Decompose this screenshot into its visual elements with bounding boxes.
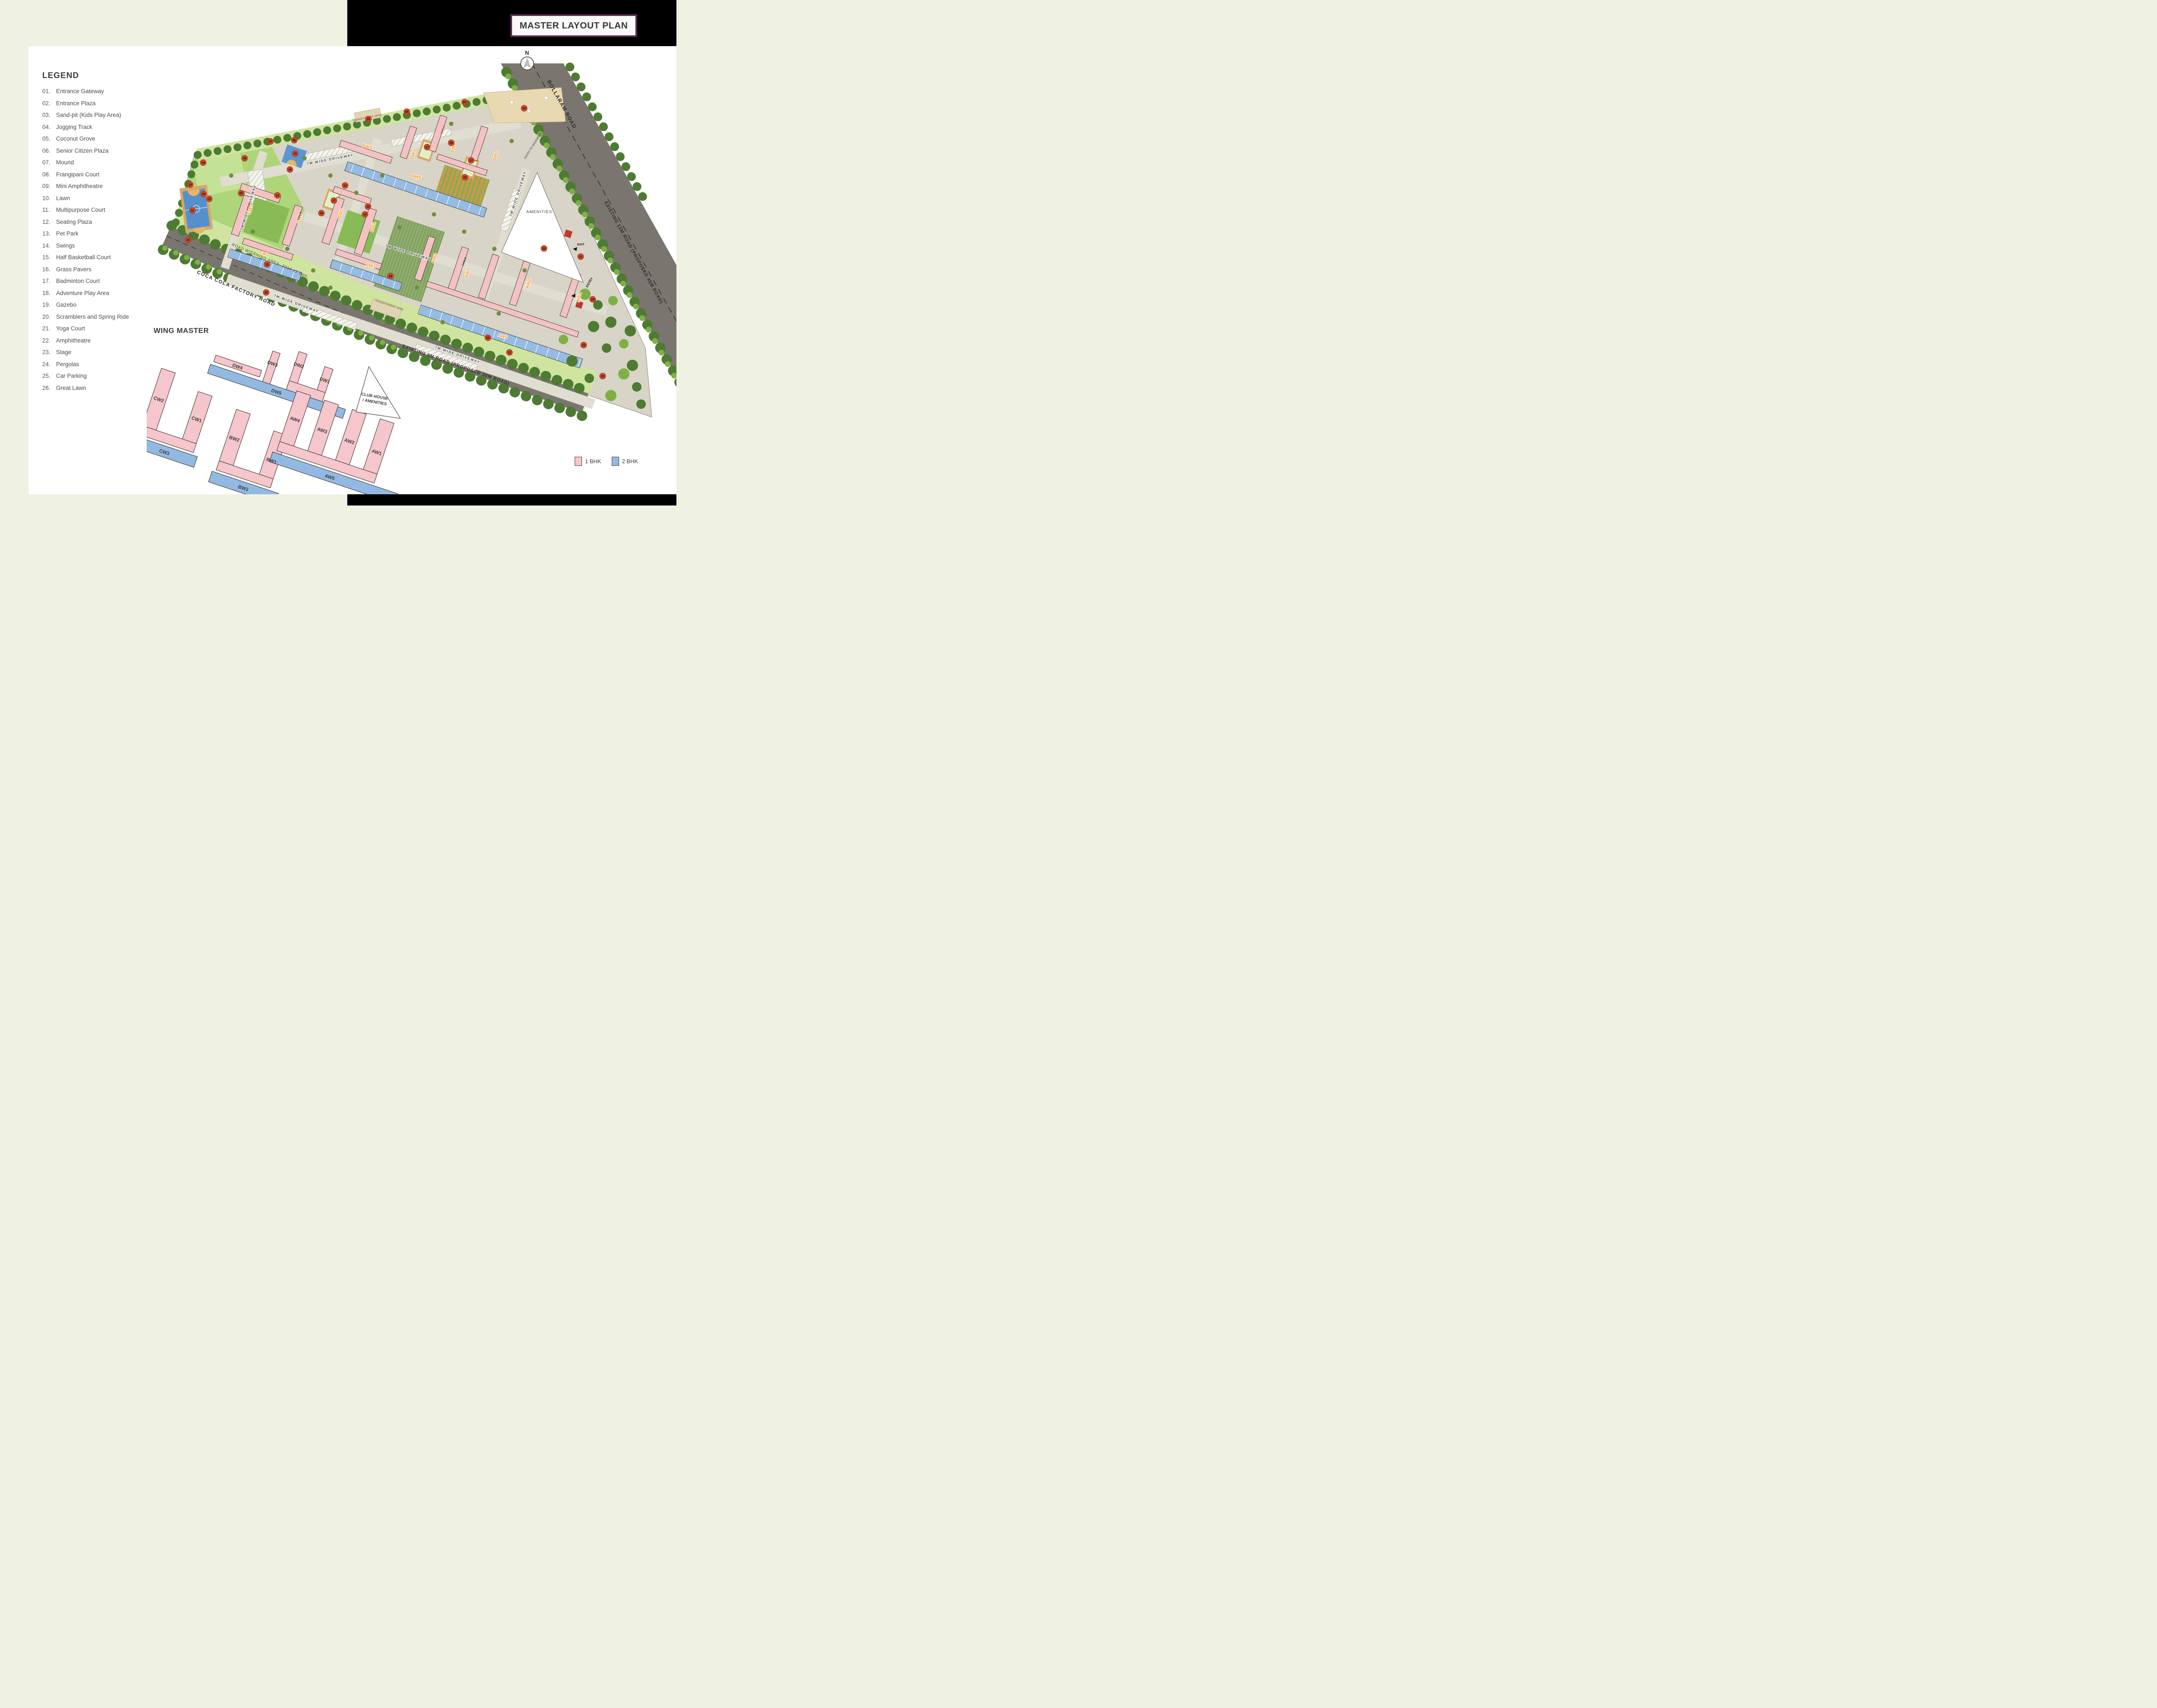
- map-badge: 17: [468, 157, 474, 163]
- tree-icon: [432, 212, 436, 217]
- tree-icon: [618, 368, 629, 380]
- map-badge: 26: [590, 296, 596, 302]
- legend-item-label: Yoga Court: [56, 326, 85, 332]
- legend-item-number: 19.: [42, 302, 56, 308]
- map-badge-number: 13: [265, 264, 269, 267]
- map-badge: 03: [521, 105, 527, 111]
- map-badge: 07: [267, 138, 274, 144]
- tree-icon: [397, 225, 402, 229]
- tree-icon: [302, 156, 307, 160]
- legend-item-number: 10.: [42, 195, 56, 201]
- map-badge: 16: [318, 210, 324, 216]
- legend-item-number: 20.: [42, 314, 56, 320]
- legend-item-number: 26.: [42, 385, 56, 391]
- map-badge-number: 22: [601, 375, 604, 378]
- map-badge-number: 25: [264, 292, 268, 295]
- map-badge: 16: [287, 166, 293, 173]
- legend-item-label: Multipurpose Court: [56, 207, 105, 213]
- map-badge-number: 05: [405, 111, 409, 114]
- svg-text:N: N: [525, 50, 529, 56]
- legend-item: 25.Car Parking: [42, 373, 159, 379]
- map-badge-number: 24: [389, 275, 392, 278]
- tree-icon: [625, 325, 636, 336]
- legend-item-label: Amphitheatre: [56, 338, 91, 344]
- map-badge-number: 25: [367, 118, 370, 121]
- page-title: MASTER LAYOUT PLAN: [520, 21, 628, 31]
- legend-item: 22.Amphitheatre: [42, 338, 159, 344]
- legend-item-number: 15.: [42, 254, 56, 261]
- map-badge: 06: [291, 137, 297, 143]
- legend-item-label: Entrance Plaza: [56, 100, 96, 107]
- legend-item-label: Badminton Court: [56, 278, 100, 284]
- map-badge-number: 20: [450, 142, 453, 145]
- legend-item: 16.Grass Pavers: [42, 267, 159, 273]
- legend-item: 18.Adventure Play Area: [42, 290, 159, 296]
- legend-item-number: 07.: [42, 160, 56, 166]
- legend-item-label: Grass Pavers: [56, 267, 91, 273]
- legend-item-label: Entrance Gateway: [56, 88, 104, 94]
- legend-item-label: Half Basketball Court: [56, 254, 111, 261]
- tree-icon: [605, 390, 616, 401]
- legend-item: 07.Mound: [42, 160, 159, 166]
- map-badge: 12: [506, 349, 513, 355]
- tree-icon: [380, 320, 384, 324]
- legend-item-number: 03.: [42, 112, 56, 118]
- map-badge-number: 09: [202, 193, 205, 196]
- tree-icon: [328, 173, 333, 178]
- legend-item-number: 23.: [42, 349, 56, 355]
- legend-item-number: 21.: [42, 326, 56, 332]
- legend-item-number: 05.: [42, 136, 56, 142]
- legend-item-label: Frangipani Court: [56, 172, 100, 178]
- legend-item: 09.Mini Amphitheatre: [42, 183, 159, 189]
- legend-item-number: 11.: [42, 207, 56, 213]
- tree-icon: [328, 286, 333, 290]
- map-badge-number: 16: [320, 212, 323, 215]
- tree-icon: [440, 320, 445, 324]
- bhk-2-swatch: [612, 457, 619, 466]
- bhk-legend: 1 BHK 2 BHK: [575, 457, 644, 466]
- tree-icon: [492, 247, 497, 251]
- map-badge: 14: [274, 192, 280, 198]
- legend-item-number: 13.: [42, 231, 56, 237]
- map-badge: 05: [404, 109, 410, 115]
- tree-icon: [605, 317, 616, 328]
- tree-icon: [636, 399, 646, 409]
- legend-item-label: Adventure Play Area: [56, 290, 109, 296]
- legend-item: 08.Frangipani Court: [42, 172, 159, 178]
- map-badge-number: 05: [239, 192, 243, 195]
- legend: LEGEND 01.Entrance Gateway02.Entrance Pl…: [42, 71, 159, 397]
- tree-icon: [229, 173, 233, 178]
- plan-sheet: AMENITIES BOLLARAM ROAD EXISTING 12M ROA…: [28, 46, 676, 494]
- tree-icon: [566, 355, 578, 367]
- north-compass: N: [521, 50, 534, 70]
- map-badge-number: 18: [366, 206, 370, 209]
- legend-item: 06.Senior Citizen Plaza: [42, 148, 159, 154]
- legend-item: 13.Pet Park: [42, 231, 159, 237]
- legend-item-number: 17.: [42, 278, 56, 284]
- map-badge-number: 21: [343, 185, 347, 188]
- legend-item-number: 24.: [42, 361, 56, 367]
- map-badge-number: 12: [208, 198, 211, 201]
- map-badge: 13: [264, 261, 270, 267]
- legend-item: 04.Jogging Track: [42, 124, 159, 130]
- map-badge: 15: [292, 151, 298, 157]
- legend-heading: LEGEND: [42, 71, 159, 81]
- legend-item: 05.Coconut Grove: [42, 136, 159, 142]
- map-badge: 12: [206, 196, 212, 202]
- wing-master-diagram: CW2 CW1 CW3 BW2 BW1 BW3 DW4 DW3 DW2 DW1 …: [147, 332, 440, 494]
- map-badge: 01: [578, 254, 584, 260]
- legend-item-label: Senior Citizen Plaza: [56, 148, 109, 154]
- tree-icon: [509, 139, 514, 143]
- map-badge-number: 26: [591, 298, 594, 301]
- tree-icon: [497, 311, 501, 316]
- legend-item-number: 04.: [42, 124, 56, 130]
- map-badge: 11: [189, 207, 195, 213]
- tree-icon: [632, 382, 641, 392]
- legend-item: 03.Sand-pit (Kids Play Area): [42, 112, 159, 118]
- legend-item-label: Lawn: [56, 195, 70, 201]
- legend-item: 02.Entrance Plaza: [42, 100, 159, 107]
- legend-item-label: Stage: [56, 349, 71, 355]
- tree-icon: [588, 321, 599, 332]
- bhk-1-item: 1 BHK: [575, 457, 601, 466]
- map-badge: 02: [462, 174, 468, 180]
- map-badge-number: 03: [522, 107, 526, 110]
- legend-item-number: 01.: [42, 88, 56, 94]
- tree-icon: [627, 360, 638, 371]
- map-badge-number: 04: [463, 101, 466, 104]
- legend-item-label: Swings: [56, 243, 75, 249]
- map-badge-number: 12: [508, 352, 511, 355]
- legend-item: 10.Lawn: [42, 195, 159, 201]
- legend-item: 17.Badminton Court: [42, 278, 159, 284]
- tree-icon: [608, 296, 618, 305]
- tree-icon: [619, 339, 629, 349]
- map-badge: 05: [238, 190, 244, 196]
- bhk-2-item: 2 BHK: [612, 457, 638, 466]
- legend-item-label: Seating Plaza: [56, 219, 92, 225]
- legend-item-number: 25.: [42, 373, 56, 379]
- map-badge: 19: [362, 211, 368, 217]
- tree-icon: [415, 286, 419, 290]
- map-badge: 04: [200, 160, 206, 166]
- legend-item-number: 16.: [42, 267, 56, 273]
- map-badge: 25: [263, 289, 269, 295]
- legend-item-number: 12.: [42, 219, 56, 225]
- legend-item-number: 22.: [42, 338, 56, 344]
- legend-item-label: Scramblers and Spring Ride: [56, 314, 129, 320]
- map-badge-number: 11: [191, 210, 194, 213]
- map-badge: 09: [201, 191, 207, 197]
- map-badge-number: 16: [288, 169, 292, 172]
- legend-list: 01.Entrance Gateway02.Entrance Plaza03.S…: [42, 88, 159, 391]
- map-badge: 20: [448, 140, 454, 146]
- map-badge-number: 17: [332, 200, 336, 203]
- tree-icon: [285, 247, 289, 251]
- map-badge: 23: [581, 342, 587, 348]
- map-badge-number: 23: [582, 344, 585, 347]
- map-badge-number: 14: [276, 195, 279, 198]
- tree-icon: [559, 335, 568, 344]
- legend-item: 11.Multipurpose Court: [42, 207, 159, 213]
- legend-item: 01.Entrance Gateway: [42, 88, 159, 94]
- map-badge: 25: [485, 335, 491, 341]
- legend-item-number: 06.: [42, 148, 56, 154]
- legend-item-label: Pet Park: [56, 231, 79, 237]
- legend-item: 14.Swings: [42, 243, 159, 249]
- map-badge: 02: [541, 245, 547, 251]
- legend-item: 24.Pergolas: [42, 361, 159, 367]
- tree-icon: [380, 173, 384, 178]
- map-badge: 18: [365, 204, 371, 210]
- map-badge: 25: [365, 116, 371, 122]
- tree-icon: [462, 229, 466, 234]
- tree-icon: [311, 268, 315, 273]
- legend-item-label: Car Parking: [56, 373, 87, 379]
- legend-item: 12.Seating Plaza: [42, 219, 159, 225]
- map-badge-number: 10: [189, 184, 192, 187]
- map-badge-number: 07: [269, 141, 272, 144]
- map-badge-number: 01: [579, 256, 582, 259]
- legend-item: 19.Gazebo: [42, 302, 159, 308]
- legend-item-label: Jogging Track: [56, 124, 92, 130]
- map-badge-number: 17: [425, 146, 429, 149]
- map-badge-number: 15: [293, 153, 297, 156]
- map-badge-number: 25: [486, 337, 490, 340]
- tree-icon: [251, 229, 255, 234]
- legend-item: 20.Scramblers and Spring Ride: [42, 314, 159, 320]
- map-badge-number: 02: [542, 248, 546, 251]
- tree-icon: [522, 268, 527, 273]
- legend-item-label: Gazebo: [56, 302, 76, 308]
- legend-item-label: Mound: [56, 160, 74, 166]
- map-badge-number: 06: [292, 139, 296, 142]
- legend-item-label: Coconut Grove: [56, 136, 95, 142]
- legend-item: 15.Half Basketball Court: [42, 254, 159, 261]
- map-badge: 19: [185, 237, 191, 243]
- page: { "title": "MASTER LAYOUT PLAN", "compas…: [0, 0, 676, 505]
- map-badge-number: 19: [363, 213, 367, 217]
- title-box: MASTER LAYOUT PLAN: [510, 14, 637, 37]
- tree-icon: [449, 122, 453, 126]
- map-badge: 24: [387, 273, 393, 279]
- legend-item: 21.Yoga Court: [42, 326, 159, 332]
- legend-item-number: 02.: [42, 100, 56, 107]
- map-badge-number: 04: [201, 162, 205, 165]
- map-badge: 17: [424, 144, 430, 150]
- legend-item-number: 14.: [42, 243, 56, 249]
- map-badge: 08: [242, 155, 248, 161]
- map-badge: 17: [331, 198, 337, 204]
- legend-item-label: Sand-pit (Kids Play Area): [56, 112, 121, 118]
- tree-icon: [585, 374, 594, 383]
- legend-item-number: 18.: [42, 290, 56, 296]
- bhk-1-label: 1 BHK: [585, 458, 601, 465]
- bhk-1-swatch: [575, 457, 582, 466]
- bhk-2-label: 2 BHK: [622, 458, 638, 465]
- map-badge-number: 02: [463, 176, 467, 179]
- svg-text:EXIT: EXIT: [577, 242, 585, 246]
- map-badge-number: 19: [186, 239, 190, 242]
- map-badge: 22: [600, 373, 606, 379]
- legend-item-label: Great Lawn: [56, 385, 86, 391]
- map-badge: 04: [462, 99, 468, 105]
- tree-icon: [354, 191, 358, 195]
- legend-item-number: 08.: [42, 172, 56, 178]
- amenities-label: AMENITIES: [526, 210, 552, 214]
- map-badge: 10: [187, 182, 193, 188]
- legend-item-label: Mini Amphitheatre: [56, 183, 103, 189]
- map-badge: 21: [342, 182, 348, 188]
- map-badge-number: 08: [243, 157, 246, 160]
- tree-icon: [602, 343, 611, 353]
- legend-item: 26.Great Lawn: [42, 385, 159, 391]
- legend-item: 23.Stage: [42, 349, 159, 355]
- legend-item-label: Pergolas: [56, 361, 79, 367]
- legend-item-number: 09.: [42, 183, 56, 189]
- map-badge-number: 17: [469, 160, 473, 163]
